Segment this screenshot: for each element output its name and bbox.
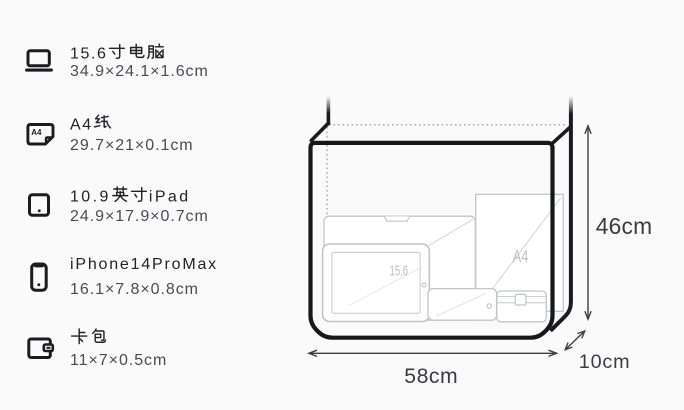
svg-text:A4: A4 xyxy=(513,246,529,266)
svg-text:58cm: 58cm xyxy=(404,365,458,388)
svg-text:10cm: 10cm xyxy=(579,351,631,373)
svg-text:15.6: 15.6 xyxy=(390,263,409,279)
svg-text:46cm: 46cm xyxy=(596,213,653,239)
